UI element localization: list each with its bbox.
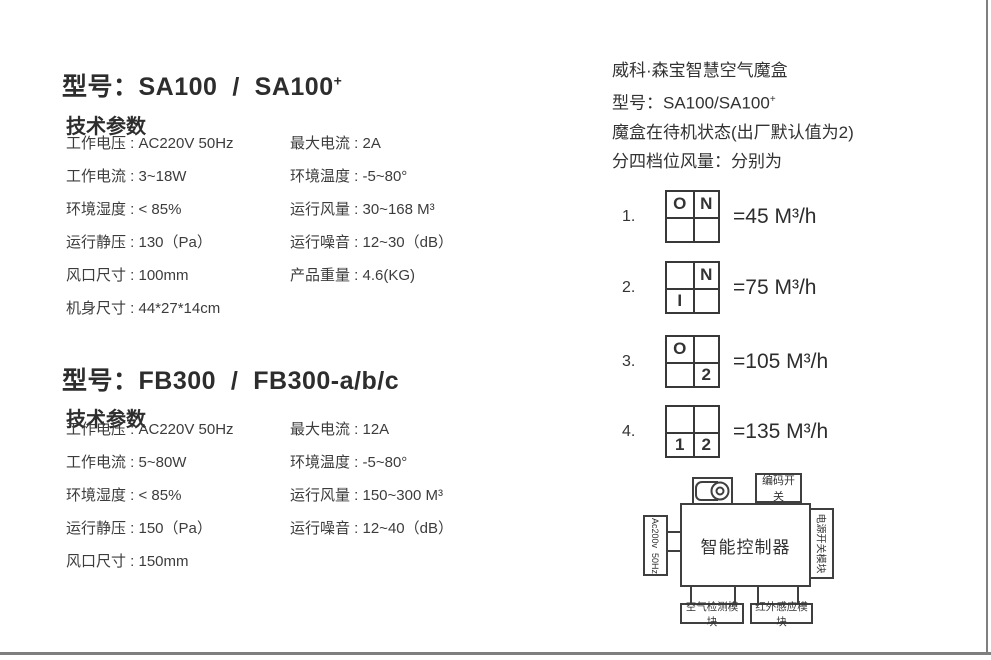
connector-line	[797, 587, 799, 603]
dip-cell	[667, 217, 693, 242]
spec-cell: 运行静压 : 130（Pa）	[66, 226, 290, 259]
gear-airflow-value: =105 M³/h	[733, 350, 828, 374]
spec-cell: 工作电压 : AC220V 50Hz	[66, 413, 290, 446]
model-title-text: 型号：SA100 / SA100	[62, 73, 334, 101]
standby-line: 魔盒在待机状态(出厂默认值为2)	[612, 118, 854, 147]
model-title-fb300: 型号：FB300 / FB300-a/b/c	[62, 361, 399, 397]
dip-cell: I	[667, 288, 693, 313]
model-line: 型号：SA100/SA100+	[612, 85, 854, 118]
spec-sheet-page: 型号：SA100 / SA100+ 技术参数 工作电压 : AC220V 50H…	[0, 0, 991, 660]
superscript-plus: +	[770, 94, 776, 105]
gear-item-1: 1. O N =45 M³/h	[622, 190, 816, 243]
spec-cell: 风口尺寸 : 100mm	[66, 259, 290, 292]
dip-cell	[667, 362, 693, 387]
spec-row: 风口尺寸 : 150mm	[66, 545, 536, 578]
gear-airflow-value: =135 M³/h	[733, 420, 828, 444]
spec-cell: 环境湿度 : < 85%	[66, 479, 290, 512]
spec-cell: 工作电流 : 5~80W	[66, 446, 290, 479]
infrared-module-box: 红外感应模块	[750, 603, 813, 624]
spec-row: 运行静压 : 130（Pa）运行噪音 : 12~30（dB）	[66, 226, 536, 259]
connector-line	[668, 550, 680, 552]
controller-block-diagram: 编码开关 智能控制器 电源开关模块 Ac200v 50Hz 空气检测模块 红外感…	[641, 471, 851, 636]
gear-number: 3.	[622, 353, 665, 371]
dip-cell: 1	[667, 432, 693, 457]
spec-cell: 工作电压 : AC220V 50Hz	[66, 127, 290, 160]
spec-cell: 最大电流 : 2A	[290, 127, 381, 160]
model-title-text: 型号：FB300 / FB300-a/b/c	[62, 367, 399, 395]
spec-row: 环境湿度 : < 85%运行风量 : 150~300 M³	[66, 479, 536, 512]
spec-cell: 产品重量 : 4.6(KG)	[290, 259, 415, 292]
model-line-text: 型号：SA100/SA100	[612, 94, 770, 113]
spec-cell: 环境温度 : -5~80°	[290, 160, 407, 193]
spec-table-fb300: 工作电压 : AC220V 50Hz最大电流 : 12A 工作电流 : 5~80…	[66, 413, 536, 578]
dip-cell: O	[667, 337, 693, 362]
superscript-plus: +	[334, 72, 343, 88]
model-title-sa100: 型号：SA100 / SA100+	[62, 67, 342, 103]
gear-number: 4.	[622, 423, 665, 441]
fan-icon	[694, 480, 731, 502]
dip-cell	[693, 407, 719, 432]
dip-cell	[667, 407, 693, 432]
connector-line	[668, 531, 680, 533]
coding-switch-box: 编码开关	[755, 473, 802, 503]
gear-item-3: 3. O 2 =105 M³/h	[622, 335, 828, 388]
gear-intro-line: 分四档位风量：分别为	[612, 147, 854, 176]
dip-cell	[693, 337, 719, 362]
spec-table-sa100: 工作电压 : AC220V 50Hz最大电流 : 2A 工作电流 : 3~18W…	[66, 127, 536, 325]
intelligent-controller-box: 智能控制器	[680, 503, 811, 587]
spec-row: 工作电流 : 5~80W环境温度 : -5~80°	[66, 446, 536, 479]
dip-cell: 2	[693, 432, 719, 457]
spec-cell: 机身尺寸 : 44*27*14cm	[66, 292, 290, 325]
spec-cell: 最大电流 : 12A	[290, 413, 389, 446]
page-border-right	[986, 0, 988, 653]
spec-cell: 运行静压 : 150（Pa）	[66, 512, 290, 545]
ac-input-box: Ac200v 50Hz	[643, 515, 668, 576]
spec-row: 风口尺寸 : 100mm产品重量 : 4.6(KG)	[66, 259, 536, 292]
gear-item-2: 2. N I =75 M³/h	[622, 261, 816, 314]
dip-switch-diagram: N I	[665, 261, 720, 314]
connector-line	[757, 587, 759, 603]
spec-cell: 风口尺寸 : 150mm	[66, 545, 290, 578]
spec-cell: 运行风量 : 150~300 M³	[290, 479, 443, 512]
fan-box	[692, 477, 733, 505]
spec-row: 运行静压 : 150（Pa）运行噪音 : 12~40（dB）	[66, 512, 536, 545]
air-detect-module-box: 空气检测模块	[680, 603, 744, 624]
gear-number: 2.	[622, 279, 665, 297]
connector-line	[690, 587, 692, 603]
power-switch-module-label: 电源开关模块	[814, 514, 829, 574]
dip-switch-diagram: O 2	[665, 335, 720, 388]
dip-switch-diagram: O N	[665, 190, 720, 243]
spec-row: 工作电流 : 3~18W环境温度 : -5~80°	[66, 160, 536, 193]
dip-cell	[693, 217, 719, 242]
connector-line	[734, 587, 736, 603]
gear-number: 1.	[622, 208, 665, 226]
spec-row: 工作电压 : AC220V 50Hz最大电流 : 12A	[66, 413, 536, 446]
dip-cell	[693, 288, 719, 313]
dip-cell	[667, 263, 693, 288]
power-switch-module-box: 电源开关模块	[809, 508, 834, 579]
brand-line: 威科·森宝智慧空气魔盒	[612, 56, 854, 85]
dip-cell: N	[693, 263, 719, 288]
gear-item-4: 4. 1 2 =135 M³/h	[622, 405, 828, 458]
spec-cell: 运行噪音 : 12~40（dB）	[290, 512, 453, 545]
spec-row: 环境湿度 : < 85%运行风量 : 30~168 M³	[66, 193, 536, 226]
spec-cell: 运行噪音 : 12~30（dB）	[290, 226, 453, 259]
gear-airflow-value: =75 M³/h	[733, 276, 816, 300]
dip-cell: 2	[693, 362, 719, 387]
spec-cell: 工作电流 : 3~18W	[66, 160, 290, 193]
ac-input-label: Ac200v 50Hz	[651, 517, 661, 573]
dip-cell: O	[667, 192, 693, 217]
dip-cell: N	[693, 192, 719, 217]
dip-switch-diagram: 1 2	[665, 405, 720, 458]
gear-airflow-value: =45 M³/h	[733, 205, 816, 229]
spec-row: 机身尺寸 : 44*27*14cm	[66, 292, 536, 325]
page-border-bottom	[0, 652, 991, 655]
right-panel-intro: 威科·森宝智慧空气魔盒 型号：SA100/SA100+ 魔盒在待机状态(出厂默认…	[612, 56, 854, 176]
spec-cell: 运行风量 : 30~168 M³	[290, 193, 435, 226]
spec-cell: 环境湿度 : < 85%	[66, 193, 290, 226]
spec-cell: 环境温度 : -5~80°	[290, 446, 407, 479]
spec-row: 工作电压 : AC220V 50Hz最大电流 : 2A	[66, 127, 536, 160]
